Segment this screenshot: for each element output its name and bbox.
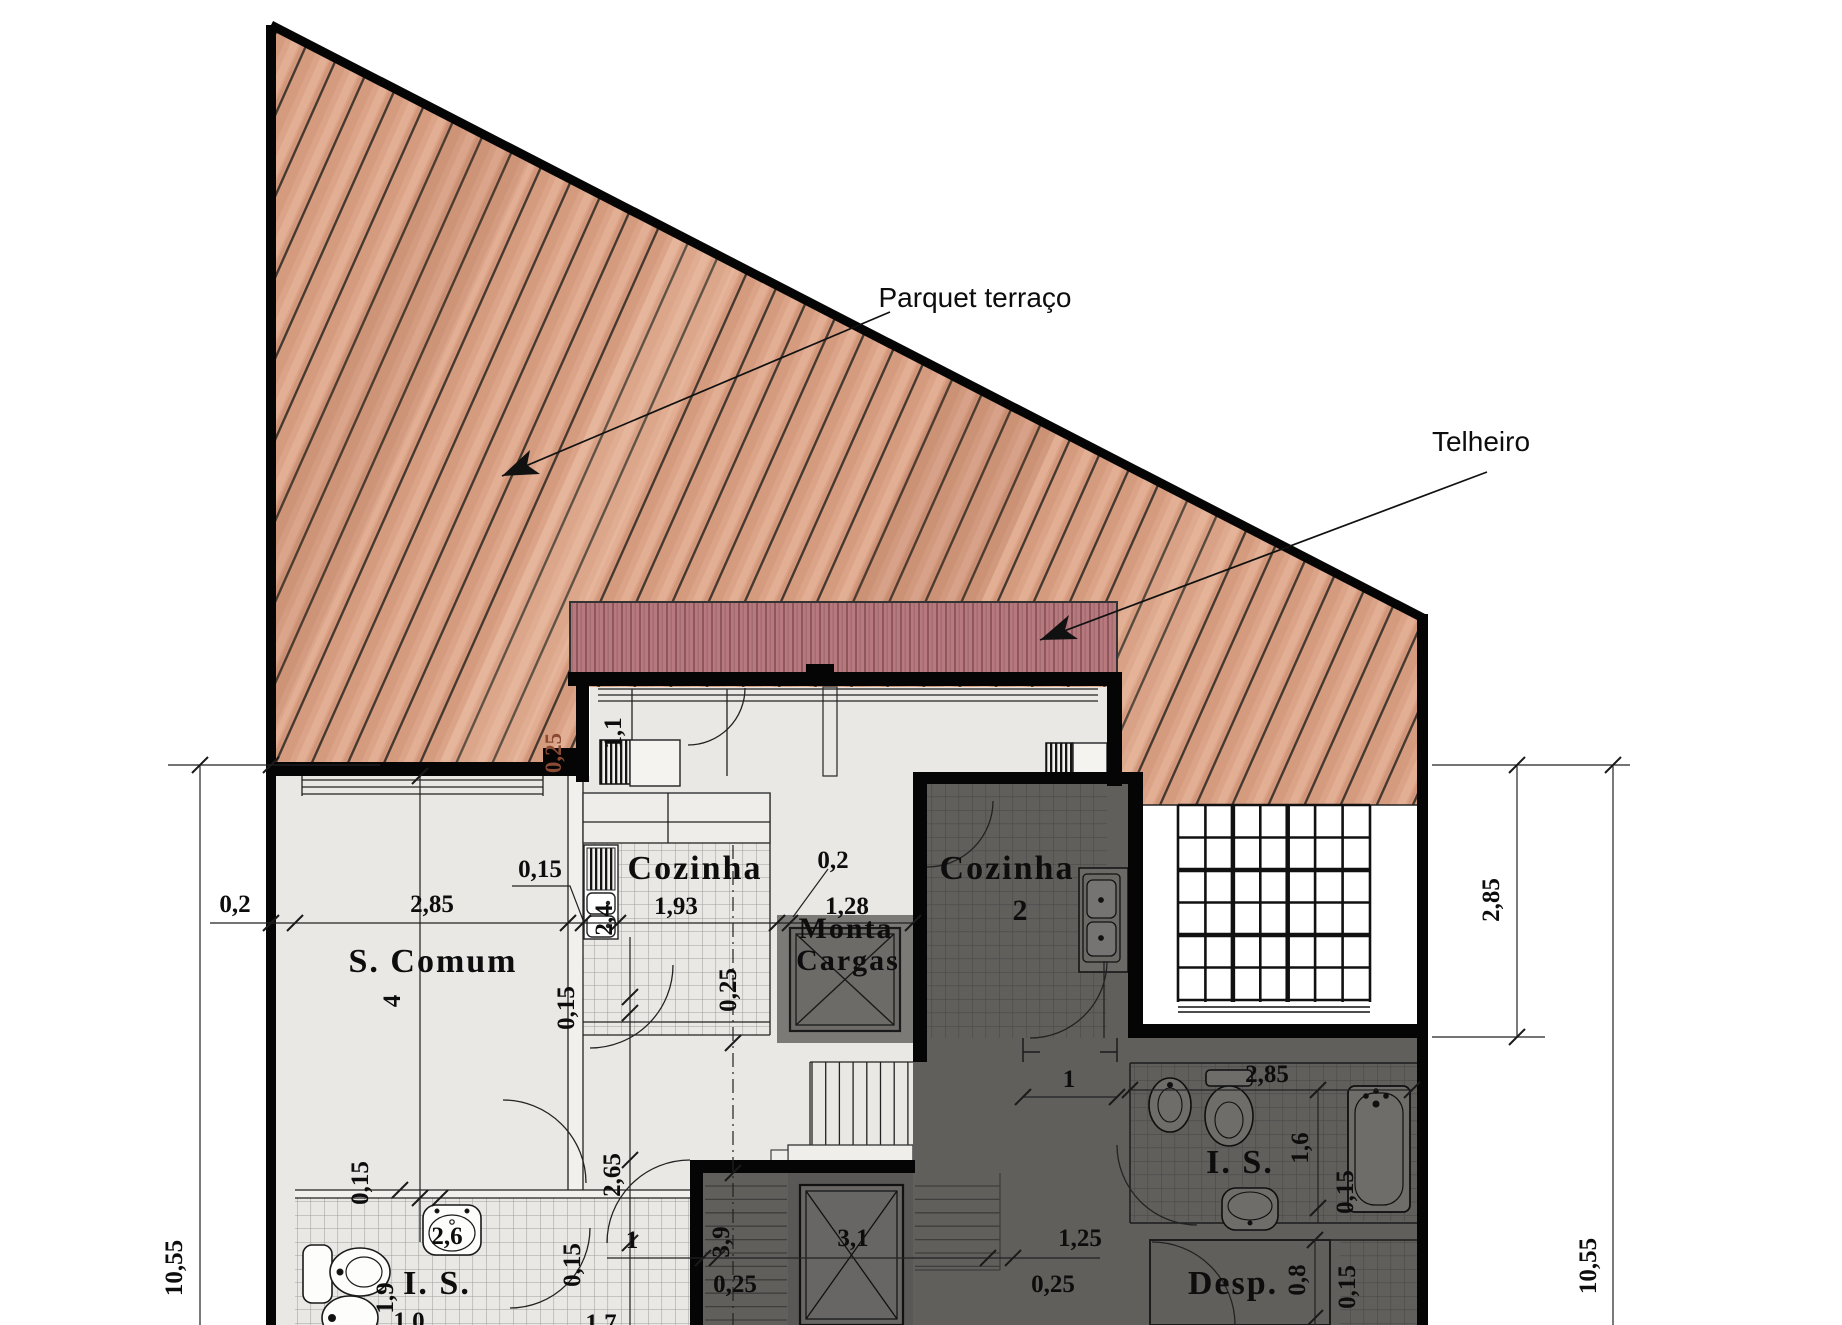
wall-upper-north [568,672,1122,686]
dim-2-85-left: 2,85 [410,891,454,918]
wall-skylight-west [1128,772,1143,1038]
dim-1-28: 1,28 [825,893,869,920]
skylight [1143,805,1418,1024]
dim-1-a: 1 [626,1227,639,1254]
room-number-cozinha-right: 2 [1013,894,1030,927]
room-label-is-right: I. S. [1206,1144,1274,1181]
wall-upper-east [1107,672,1122,786]
dim-1-25: 1,25 [1058,1225,1102,1252]
wall-stair-west [690,1160,703,1325]
dim-2-4: 2,4 [591,904,618,936]
dim-10-55-right: 10,55 [1575,1238,1602,1294]
dim-0-15-b: 0,15 [347,1161,374,1205]
wall-skylight-south [1128,1024,1428,1038]
dim-0-15-c: 0,15 [553,986,580,1030]
telheiro-roof [570,602,1117,678]
room-number-cozinha-left: 1,93 [654,893,698,920]
dim-2-85-right: 2,85 [1478,878,1505,922]
floor-plan-svg: S. Comum 4 Cozinha 1,93 Monta Cargas Coz… [0,0,1842,1325]
dim-2-85-bath: 2,85 [1245,1061,1289,1088]
dim-0-25-c: 0,25 [1031,1271,1075,1298]
dim-10-55-left: 10,55 [161,1240,188,1296]
dim-0-2-b: 0,2 [817,847,848,874]
room-label-cargas: Cargas [796,944,900,977]
dim-0-15-a: 0,15 [518,856,562,883]
dim-1-6: 1,6 [1287,1132,1314,1163]
room-label-is-left: I. S. [403,1265,471,1302]
wall-kitchen2-north [913,772,1128,784]
room-label-cozinha-right: Cozinha [940,850,1075,887]
annotation-telheiro: Telheiro [1432,426,1530,457]
wall-right-outer [1417,614,1428,1325]
sink-drainer [587,848,615,890]
vent-shaft-icon [1046,743,1073,775]
dim-0-2-left: 0,2 [219,891,250,918]
room-label-desp: Desp. [1188,1265,1278,1302]
room-label-s-comum: S. Comum [348,943,517,980]
dim-1-7: 1,7 [585,1310,616,1325]
dim-1-1: 1,1 [600,717,627,748]
dim-0-25-b: 0,25 [713,1271,757,1298]
floor-plan: S. Comum 4 Cozinha 1,93 Monta Cargas Coz… [0,0,1842,1325]
dim-3-9: 3,9 [708,1226,735,1257]
dim-2-6: 2,6 [431,1223,462,1250]
wall-stair-north [690,1160,915,1173]
dim-1-0: 1,0 [393,1308,424,1325]
dim-0-8: 0,8 [1284,1264,1311,1295]
dim-0-15-f: 0,15 [1334,1265,1361,1309]
room-label-cozinha-left: Cozinha [628,850,763,887]
dim-0-15-d: 0,15 [559,1243,586,1287]
dim-0-15-e: 0,15 [1332,1170,1359,1214]
room-number-s-comum: 4 [379,994,406,1007]
wall-left-outer [266,25,276,1325]
dim-3-1: 3,1 [837,1225,868,1252]
kitchen-right-sink [1079,868,1128,972]
dim-1-b: 1 [1063,1066,1076,1093]
dim-0-25-a: 0,25 [715,968,742,1012]
dim-0-25-brown: 0,25 [541,733,566,773]
dim-2-65: 2,65 [599,1153,626,1197]
wall-post [806,664,834,674]
toilet-cistern-icon [303,1245,332,1303]
annotation-parquet-terrace: Parquet terraço [879,282,1072,313]
